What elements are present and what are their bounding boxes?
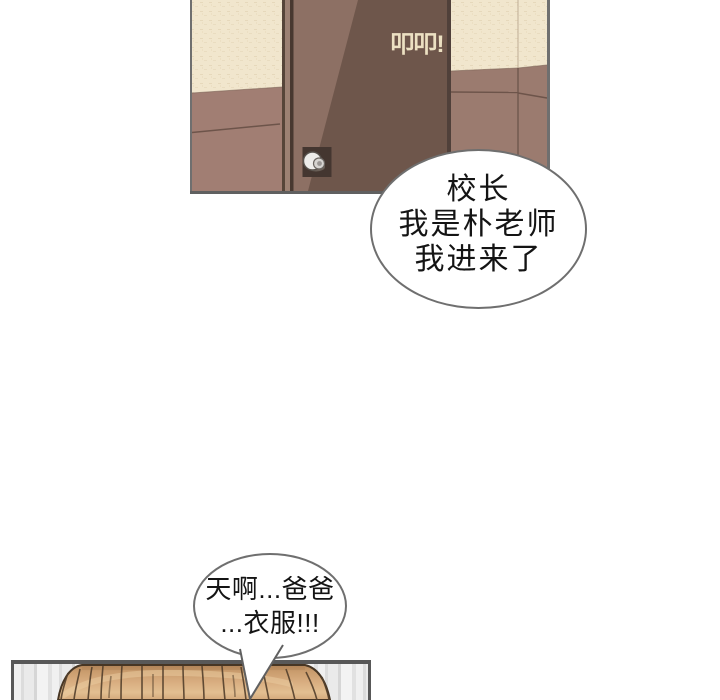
comic-page: 叩叩! [0, 0, 720, 700]
speech-bubble-shock-tail [230, 638, 295, 700]
panel-hallway [11, 660, 371, 700]
knock-sfx-text: 叩叩! [391, 31, 444, 58]
wall-right-paper [451, 0, 547, 71]
door-knob [303, 147, 332, 177]
speech-line: ...衣服!!! [220, 606, 319, 640]
wall-left-paper [192, 0, 282, 93]
speech-line: 校长 [447, 172, 511, 207]
speech-bubble-principal: 校长 我是朴老师 我进来了 [370, 149, 587, 309]
chair-rail-right [451, 92, 518, 93]
hair-illustration [14, 664, 368, 700]
speech-line: 我进来了 [415, 242, 543, 277]
wall-left-lower [192, 87, 282, 191]
speech-line: 天啊...爸爸 [205, 572, 334, 606]
speech-line: 我是朴老师 [399, 207, 559, 242]
door-frame [282, 0, 294, 191]
